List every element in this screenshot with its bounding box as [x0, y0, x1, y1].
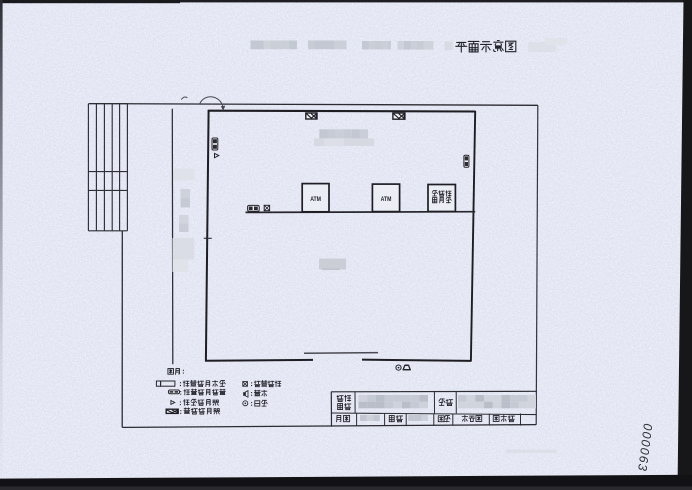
svg-text:ATM: ATM	[310, 196, 321, 203]
svg-text:ATM: ATM	[381, 196, 392, 203]
